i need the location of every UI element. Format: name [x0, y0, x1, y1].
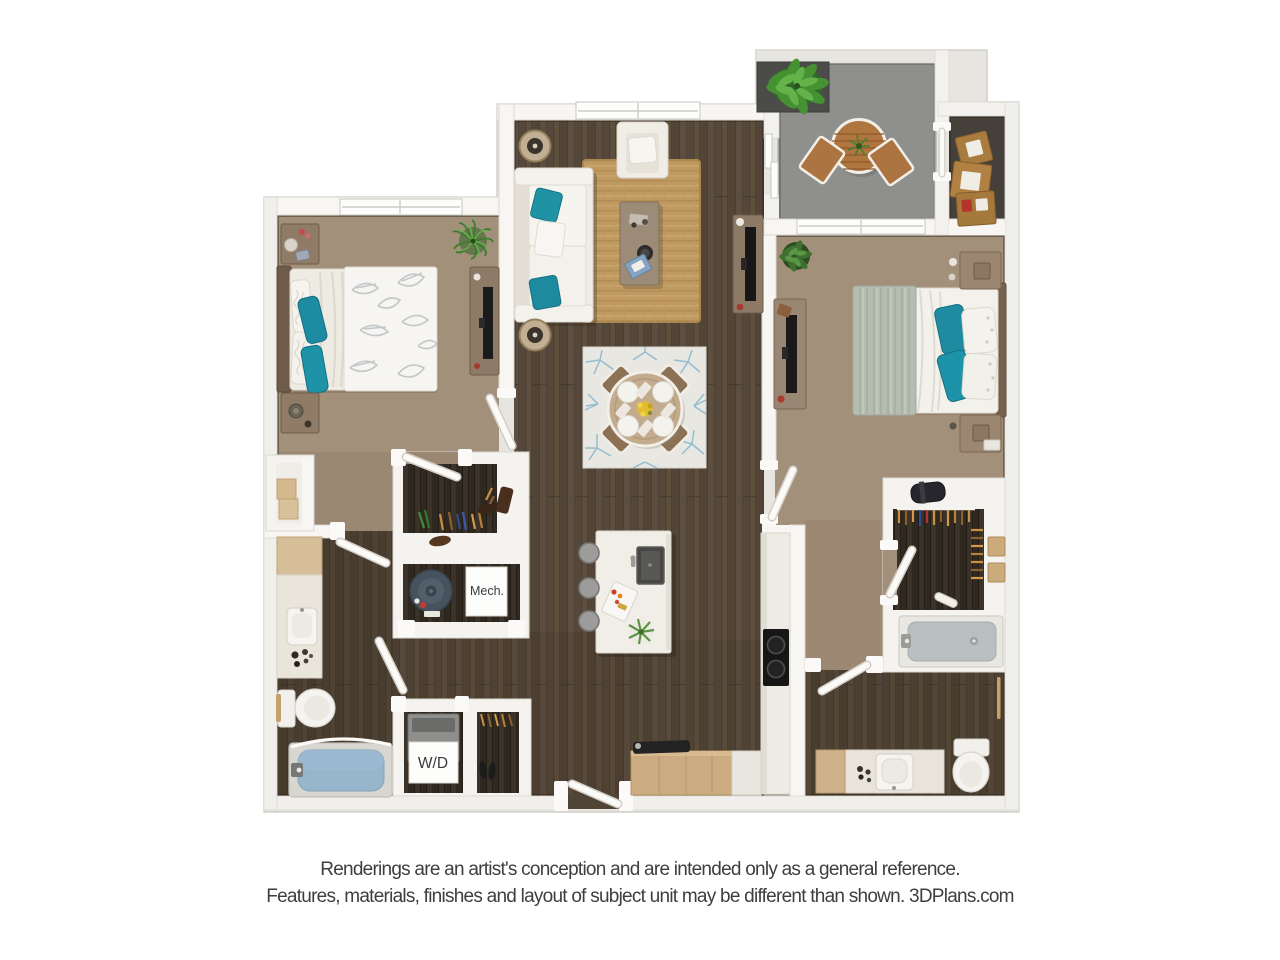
svg-text:W/D: W/D: [418, 755, 448, 772]
svg-text:Features, materials, finishes: Features, materials, finishes and layout…: [266, 886, 1014, 907]
svg-text:Renderings are an artist's con: Renderings are an artist's conception an…: [320, 859, 960, 880]
svg-text:Mech.: Mech.: [470, 584, 504, 598]
